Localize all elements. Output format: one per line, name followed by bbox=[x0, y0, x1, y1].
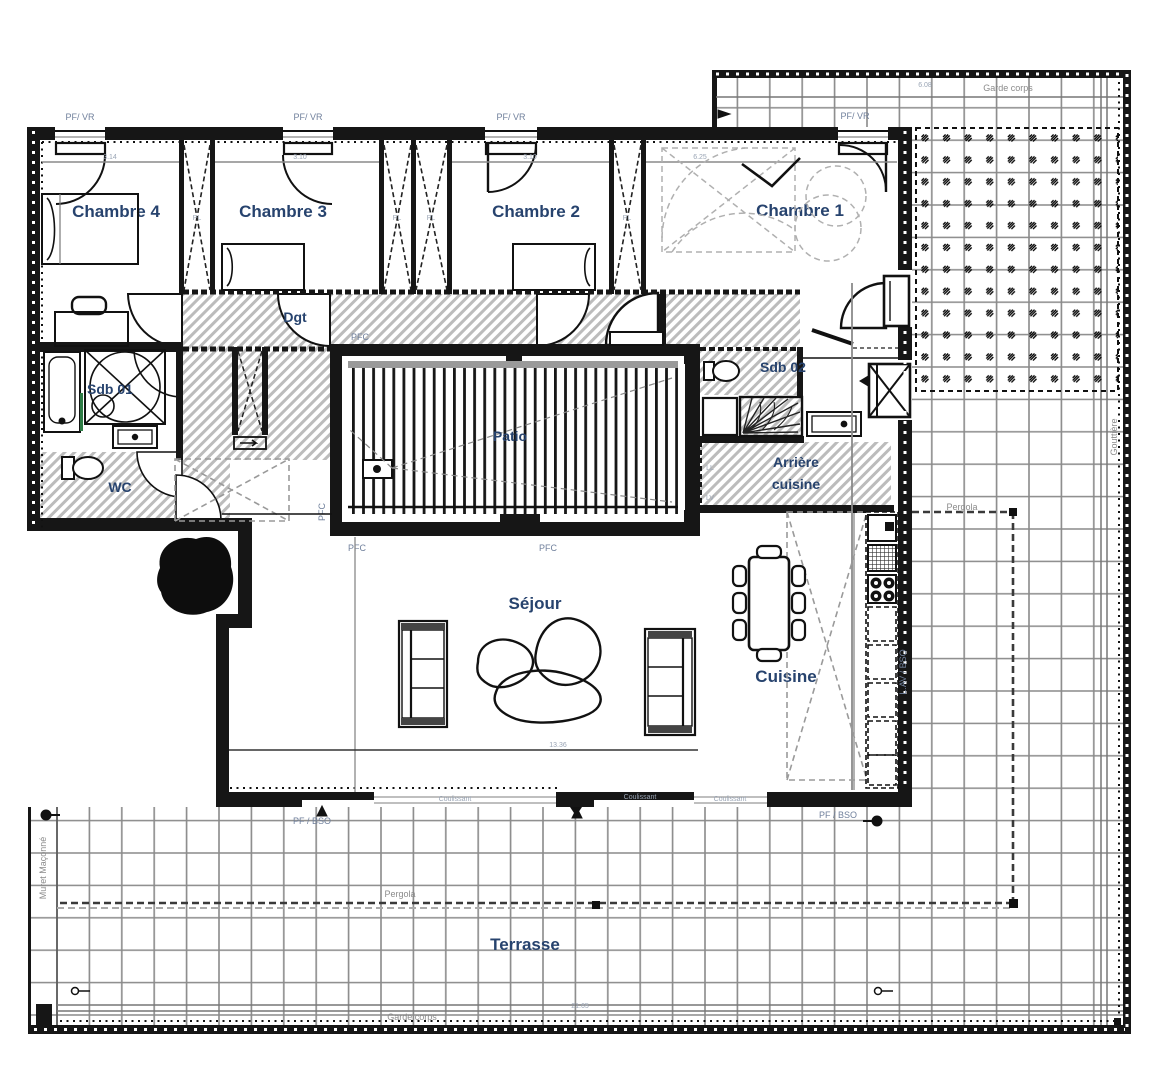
svg-text:PF/ VR: PF/ VR bbox=[293, 112, 323, 122]
svg-text:LL: LL bbox=[706, 465, 714, 472]
svg-text:PL: PL bbox=[427, 215, 436, 222]
svg-text:Chambre 3: Chambre 3 bbox=[239, 202, 327, 221]
svg-text:Cuisine: Cuisine bbox=[755, 667, 816, 686]
svg-text:Séjour: Séjour bbox=[509, 594, 562, 613]
svg-text:L.AV / BSO: L.AV / BSO bbox=[898, 649, 908, 694]
svg-text:PFC: PFC bbox=[317, 502, 327, 521]
svg-text:Dgt: Dgt bbox=[283, 309, 307, 325]
svg-text:Gouttière: Gouttière bbox=[1109, 418, 1119, 455]
svg-text:3.10: 3.10 bbox=[523, 154, 537, 161]
svg-text:PFC: PFC bbox=[348, 543, 367, 553]
svg-text:Coulissant: Coulissant bbox=[714, 796, 747, 803]
svg-text:Sdb 02: Sdb 02 bbox=[760, 359, 806, 375]
svg-text:6.08: 6.08 bbox=[918, 82, 932, 89]
svg-text:Pergola: Pergola bbox=[384, 889, 415, 899]
svg-text:Patio: Patio bbox=[493, 428, 527, 444]
svg-text:Chambre 4: Chambre 4 bbox=[72, 202, 160, 221]
svg-text:PF / BSO: PF / BSO bbox=[293, 816, 331, 826]
svg-text:PL: PL bbox=[623, 215, 632, 222]
svg-text:Garde corps: Garde corps bbox=[983, 83, 1033, 93]
svg-text:PFC: PFC bbox=[351, 332, 370, 342]
svg-text:Coulissant: Coulissant bbox=[439, 796, 472, 803]
svg-text:Muret Maçonné: Muret Maçonné bbox=[38, 837, 48, 900]
svg-text:PL: PL bbox=[393, 215, 402, 222]
svg-text:PF/ VR: PF/ VR bbox=[496, 112, 526, 122]
svg-text:Sdb 01: Sdb 01 bbox=[87, 381, 133, 397]
svg-text:PF/ VR: PF/ VR bbox=[65, 112, 95, 122]
svg-text:3.14: 3.14 bbox=[103, 154, 117, 161]
svg-text:13.36: 13.36 bbox=[549, 742, 567, 749]
svg-text:Terrasse: Terrasse bbox=[490, 935, 560, 954]
svg-text:Pergola: Pergola bbox=[946, 502, 977, 512]
svg-text:Arrière: Arrière bbox=[773, 454, 819, 470]
svg-text:PL: PL bbox=[193, 215, 202, 222]
svg-text:LV: LV bbox=[706, 495, 714, 502]
svg-text:PFC: PFC bbox=[539, 543, 558, 553]
svg-text:PF / BSO: PF / BSO bbox=[819, 810, 857, 820]
svg-text:Coulissant: Coulissant bbox=[624, 794, 657, 801]
svg-text:Chambre 2: Chambre 2 bbox=[492, 202, 580, 221]
svg-text:6.25: 6.25 bbox=[693, 154, 707, 161]
svg-text:PF/ VR: PF/ VR bbox=[840, 111, 870, 121]
svg-text:21.65: 21.65 bbox=[571, 1003, 589, 1010]
svg-text:cuisine: cuisine bbox=[772, 476, 820, 492]
svg-text:3.10: 3.10 bbox=[293, 154, 307, 161]
svg-text:WC: WC bbox=[108, 479, 131, 495]
